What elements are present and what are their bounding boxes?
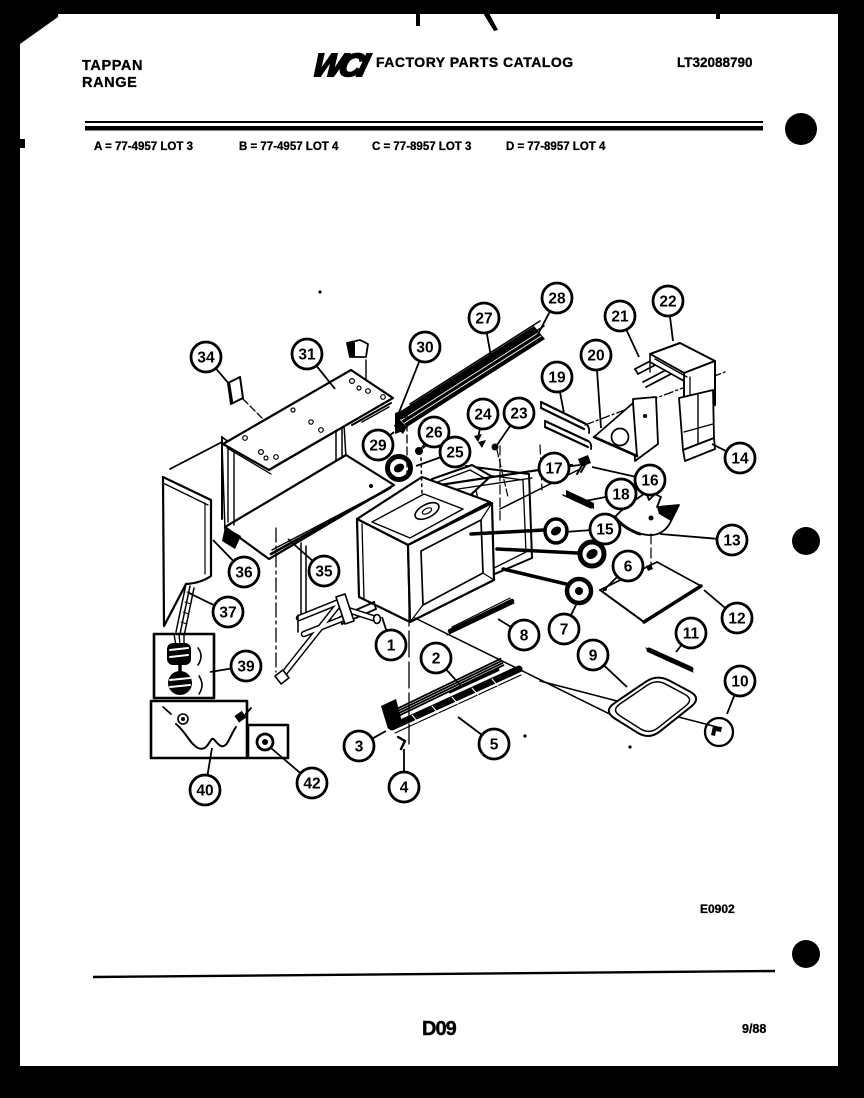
- svg-text:RANGE: RANGE: [82, 75, 137, 91]
- svg-text:26: 26: [425, 425, 443, 442]
- svg-text:C = 77-8957 LOT 3: C = 77-8957 LOT 3: [372, 141, 471, 153]
- svg-text:28: 28: [548, 291, 566, 308]
- svg-text:B = 77-4957 LOT 4: B = 77-4957 LOT 4: [239, 141, 339, 153]
- svg-text:24: 24: [474, 407, 492, 424]
- svg-text:7: 7: [560, 622, 569, 639]
- svg-text:14: 14: [731, 451, 749, 468]
- svg-text:30: 30: [416, 340, 433, 357]
- svg-text:37: 37: [219, 605, 236, 622]
- svg-text:21: 21: [611, 309, 629, 326]
- svg-text:D = 77-8957 LOT 4: D = 77-8957 LOT 4: [506, 141, 606, 153]
- svg-text:2: 2: [432, 651, 441, 668]
- svg-text:FACTORY PARTS CATALOG: FACTORY PARTS CATALOG: [376, 54, 574, 70]
- svg-text:35: 35: [315, 564, 333, 581]
- svg-text:12: 12: [728, 611, 745, 628]
- svg-text:LT32088790: LT32088790: [677, 55, 753, 70]
- svg-text:4: 4: [400, 780, 409, 797]
- svg-text:A = 77-4957 LOT 3: A = 77-4957 LOT 3: [94, 141, 193, 153]
- svg-text:31: 31: [298, 347, 316, 364]
- svg-text:39: 39: [237, 659, 255, 676]
- svg-text:1: 1: [387, 638, 396, 655]
- svg-text:20: 20: [587, 348, 604, 365]
- svg-text:18: 18: [612, 487, 630, 504]
- svg-text:17: 17: [545, 461, 562, 478]
- svg-text:5: 5: [490, 737, 499, 754]
- svg-text:16: 16: [641, 473, 659, 490]
- svg-text:11: 11: [683, 626, 700, 643]
- svg-text:TAPPAN: TAPPAN: [82, 58, 143, 74]
- svg-text:8: 8: [520, 628, 529, 645]
- svg-text:3: 3: [355, 739, 364, 756]
- svg-text:23: 23: [510, 406, 528, 423]
- svg-text:9/88: 9/88: [742, 1022, 766, 1036]
- svg-text:10: 10: [731, 674, 748, 691]
- svg-text:19: 19: [548, 370, 566, 387]
- svg-text:42: 42: [303, 776, 320, 793]
- svg-text:13: 13: [723, 533, 741, 550]
- svg-text:40: 40: [196, 783, 213, 800]
- svg-text:34: 34: [197, 350, 215, 367]
- svg-text:27: 27: [475, 311, 492, 328]
- svg-text:25: 25: [446, 445, 464, 462]
- svg-text:D09: D09: [422, 1018, 457, 1040]
- svg-text:36: 36: [235, 565, 253, 582]
- svg-text:9: 9: [589, 648, 598, 665]
- svg-text:15: 15: [596, 522, 614, 539]
- svg-text:29: 29: [369, 438, 387, 455]
- svg-text:6: 6: [624, 559, 633, 576]
- svg-text:E0902: E0902: [700, 902, 735, 916]
- svg-text:22: 22: [659, 294, 676, 311]
